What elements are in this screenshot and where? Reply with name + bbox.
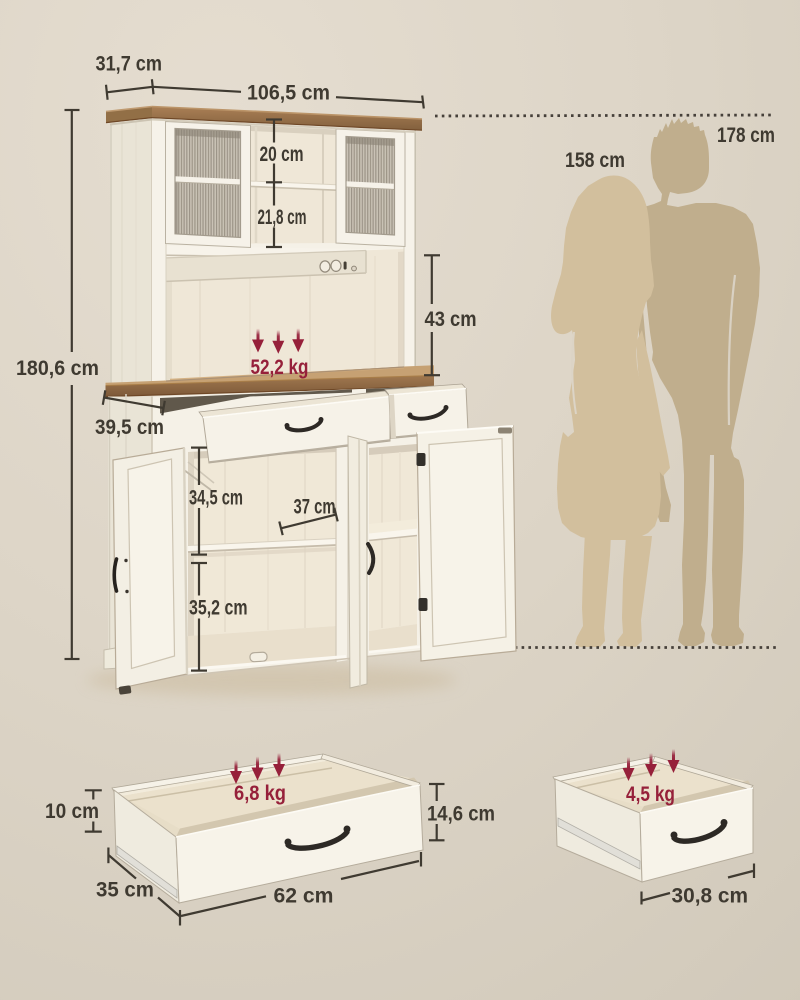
svg-text:62 cm: 62 cm: [274, 885, 334, 908]
svg-text:21,8 cm: 21,8 cm: [258, 206, 307, 229]
svg-text:178 cm: 178 cm: [717, 124, 775, 147]
svg-text:20 cm: 20 cm: [260, 143, 304, 166]
svg-text:34,5 cm: 34,5 cm: [189, 487, 243, 510]
svg-text:10 cm: 10 cm: [45, 800, 99, 823]
svg-text:35 cm: 35 cm: [96, 879, 154, 902]
svg-text:31,7 cm: 31,7 cm: [96, 53, 163, 76]
svg-text:35,2 cm: 35,2 cm: [189, 597, 248, 620]
svg-text:52,2 kg: 52,2 kg: [251, 356, 309, 379]
svg-text:158 cm: 158 cm: [565, 149, 625, 172]
svg-text:43 cm: 43 cm: [425, 308, 477, 331]
svg-text:6,8 kg: 6,8 kg: [234, 782, 286, 805]
svg-text:106,5 cm: 106,5 cm: [247, 82, 330, 105]
svg-text:37 cm: 37 cm: [294, 496, 336, 519]
svg-text:4,5 kg: 4,5 kg: [626, 783, 675, 806]
svg-text:180,6 cm: 180,6 cm: [16, 357, 99, 380]
svg-text:14,6 cm: 14,6 cm: [427, 803, 495, 826]
svg-text:30,8 cm: 30,8 cm: [672, 885, 749, 908]
svg-text:39,5 cm: 39,5 cm: [95, 416, 164, 439]
